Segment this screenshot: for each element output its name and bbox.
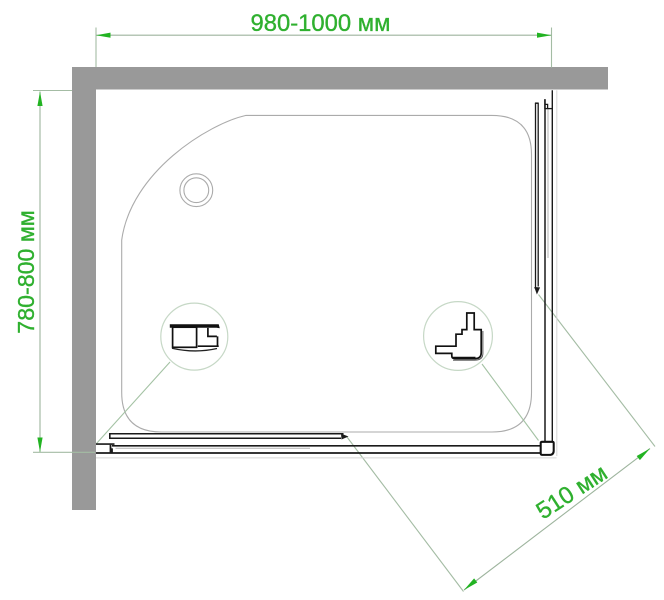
svg-text:980-1000 мм: 980-1000 мм bbox=[251, 10, 391, 37]
svg-text:780-800 мм: 780-800 мм bbox=[13, 210, 39, 333]
